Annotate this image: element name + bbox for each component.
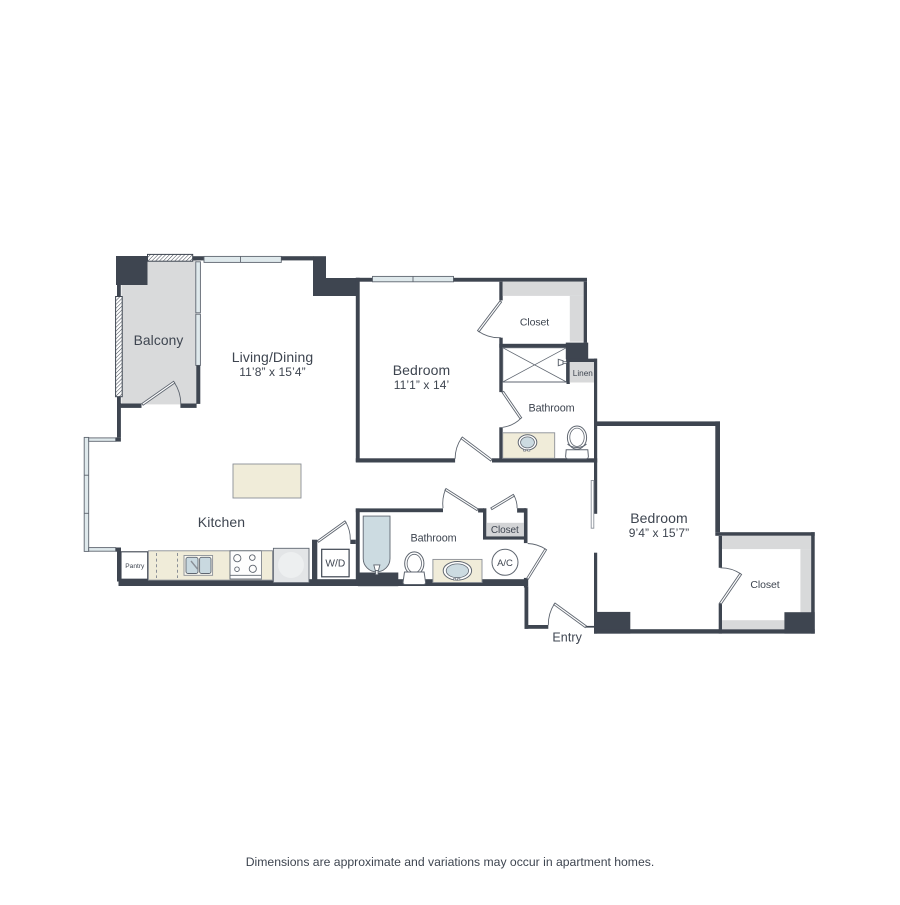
svg-text:Linen: Linen [573, 369, 593, 378]
svg-text:Entry: Entry [552, 631, 582, 645]
svg-text:Closet: Closet [520, 316, 549, 328]
svg-text:Bathroom: Bathroom [410, 533, 456, 545]
svg-text:Bedroom: Bedroom [393, 362, 451, 378]
svg-text:A/C: A/C [497, 558, 513, 569]
svg-text:Bedroom: Bedroom [630, 510, 688, 526]
svg-text:Living/Dining: Living/Dining [232, 349, 313, 365]
svg-text:Closet: Closet [750, 579, 779, 591]
svg-text:Bathroom: Bathroom [528, 403, 574, 415]
svg-text:Pantry: Pantry [125, 563, 145, 570]
svg-text:11’8” x 15’4”: 11’8” x 15’4” [239, 365, 305, 379]
svg-text:W/D: W/D [325, 559, 345, 570]
svg-text:Kitchen: Kitchen [198, 514, 245, 530]
svg-text:9’4” x 15’7”: 9’4” x 15’7” [629, 526, 690, 540]
svg-text:Balcony: Balcony [134, 333, 184, 348]
svg-text:Closet: Closet [491, 525, 519, 536]
svg-text:11’1” x 14’: 11’1” x 14’ [394, 378, 450, 392]
svg-text:Dimensions are approximate and: Dimensions are approximate and variation… [246, 855, 654, 869]
